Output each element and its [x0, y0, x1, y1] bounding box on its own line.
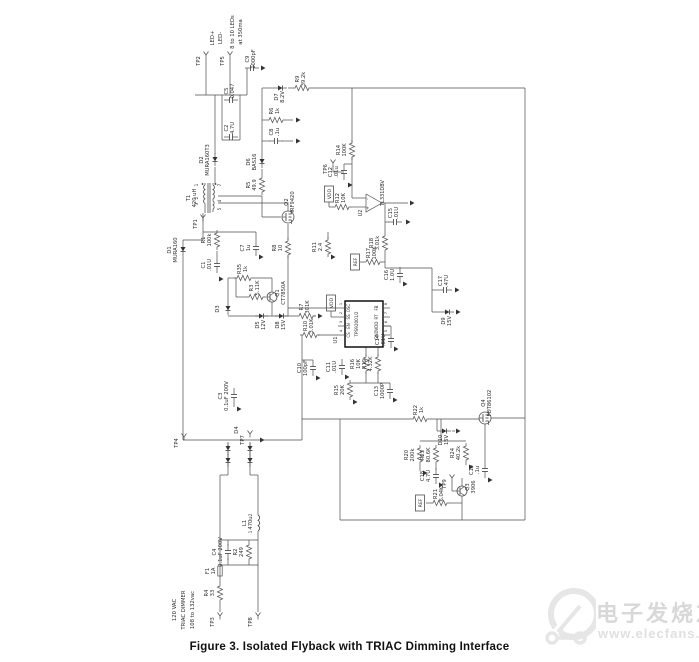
component-R22: R221k [410, 405, 430, 422]
component-TP4: TP4 [174, 434, 187, 449]
component-TP2: TP2 [196, 52, 209, 67]
component-R2: R2249 [233, 542, 252, 562]
svg-text:TP4: TP4 [174, 438, 180, 449]
component-7: 7 [217, 183, 222, 186]
svg-text:1: 1 [338, 302, 343, 305]
component-D6: D6BAS16 [246, 153, 265, 170]
svg-text:4.7U: 4.7U [426, 470, 432, 482]
svg-text:.01U: .01U [332, 361, 338, 373]
component-TP7: TP7 [240, 431, 253, 446]
svg-text:12V: 12V [261, 319, 267, 330]
svg-text:120 VAC: 120 VAC [172, 599, 178, 622]
component-VDD: VDD [327, 295, 336, 311]
svg-text:100pF: 100pF [303, 360, 309, 376]
component-diode [248, 454, 253, 467]
svg-text:1k: 1k [419, 407, 425, 413]
component-C13: C131000P [374, 383, 393, 399]
component-120 VAC: 120 VAC [172, 599, 178, 622]
svg-text:TPS92001/2: TPS92001/2 [354, 311, 359, 337]
component-4: 4 [217, 199, 222, 202]
component-C12: C12.01u [328, 164, 347, 180]
component-R12: R1210K [332, 192, 352, 209]
watermark: 电子发烧友 www.elecfans.com [540, 580, 699, 660]
svg-text:VDD: VDD [329, 297, 335, 308]
svg-text:TP8: TP8 [248, 617, 254, 628]
svg-text:SS: SS [346, 314, 351, 320]
component-R19: R194.32K [362, 354, 381, 374]
svg-text:.47U: .47U [444, 275, 450, 287]
component-Q2: Q2IRF9420 [282, 191, 296, 224]
svg-text:15V: 15V [281, 319, 287, 330]
svg-text:40.2k: 40.2k [456, 446, 462, 461]
svg-text:at 350ma: at 350ma [238, 19, 244, 45]
svg-text:D4: D4 [234, 426, 240, 434]
svg-text:TL331DBV: TL331DBV [380, 179, 386, 207]
svg-text:VDD: VDD [374, 322, 379, 331]
component-R10: R103.01K [300, 318, 320, 338]
component-LED-: LED- [218, 32, 224, 44]
component-TP5: TP5 [220, 52, 233, 67]
watermark-url: www.elecfans.com [598, 626, 699, 641]
component-C9: C91000pF [245, 49, 259, 71]
svg-text:EN: EN [346, 323, 351, 329]
svg-text:D3: D3 [215, 305, 221, 312]
svg-text:LED-: LED- [218, 32, 224, 44]
svg-text:2: 2 [194, 196, 199, 199]
svg-text:1u: 1u [246, 245, 252, 252]
svg-text:0.1uF 200V: 0.1uF 200V [218, 537, 224, 567]
svg-text:U2: U2 [358, 210, 364, 217]
svg-text:.01U: .01U [207, 259, 213, 271]
svg-text:4: 4 [338, 329, 343, 332]
component-C2: C24.7U [224, 122, 238, 140]
component-1: 1 [248, 530, 253, 533]
component-at 350ma: at 350ma [238, 19, 244, 45]
svg-text:U1: U1 [333, 336, 339, 343]
component-R15: R1520K [334, 380, 353, 400]
component-D3: D3 [215, 302, 231, 315]
svg-text:-: - [366, 198, 371, 200]
svg-text:10K: 10K [341, 192, 347, 203]
component-TP8: TP8 [248, 613, 261, 628]
svg-text:100k: 100k [207, 234, 213, 247]
component-R35: R351k [234, 264, 254, 281]
svg-text:100K: 100K [372, 246, 378, 260]
svg-text:.01u: .01u [334, 166, 340, 178]
svg-text:CS: CS [346, 332, 351, 338]
svg-text:39.2k: 39.2k [301, 72, 307, 87]
component-D4: D4 [234, 426, 240, 434]
svg-text:1k: 1k [243, 266, 249, 272]
component-108 to 132vac: 108 to 132vac [190, 591, 196, 629]
svg-text:1A: 1A [211, 567, 217, 574]
component-VDD: VDD [325, 186, 334, 202]
svg-text:TP1: TP1 [193, 219, 199, 230]
svg-text:.01U: .01U [381, 334, 387, 346]
svg-text:IRF9420: IRF9420 [290, 191, 296, 212]
component-D10: D1015V [438, 429, 451, 446]
svg-text:2.4: 2.4 [318, 242, 324, 251]
svg-text:8.2V: 8.2V [280, 91, 286, 103]
svg-text:.1u: .1u [475, 466, 481, 474]
component-C18: C184.7U [420, 468, 439, 484]
scanned-page: LED+LED-8 to 10 LEDsat 350maTP2TP5C91000… [0, 0, 699, 662]
svg-text:FB: FB [374, 305, 379, 310]
component-Q4: Q4FDT86102 [479, 390, 493, 425]
svg-text:.01U: .01U [394, 207, 400, 219]
svg-text:301K: 301K [305, 300, 311, 314]
component-diode [226, 454, 231, 467]
component-TP1: TP1 [193, 215, 206, 230]
component-D7: D78.2V [274, 86, 287, 103]
svg-text:2: 2 [338, 311, 343, 314]
component-2: 2 [194, 196, 199, 199]
svg-text:15V: 15V [447, 315, 453, 326]
svg-text:TP3: TP3 [210, 617, 216, 628]
svg-text:108 to 132vac: 108 to 132vac [190, 591, 196, 629]
svg-text:BAS16: BAS16 [252, 153, 258, 170]
component-D5: D512V [255, 314, 268, 331]
svg-text:3: 3 [338, 320, 343, 323]
svg-text:4.32K: 4.32K [368, 356, 374, 372]
svg-text:REF: REF [353, 257, 359, 266]
component-C8: C8.1u [269, 128, 283, 144]
svg-text:OSC: OSC [346, 304, 351, 313]
component-L1: L1470u [242, 515, 260, 531]
component-5: 5 [217, 207, 222, 210]
component-C1: C1.01U [201, 257, 220, 273]
component-TRIAC DIMMER: TRIAC DIMMER [181, 590, 187, 631]
component-C15: C15.01U [388, 207, 402, 225]
svg-text:.1u: .1u [275, 128, 281, 136]
ground-arrows [219, 66, 493, 488]
svg-text:VDD: VDD [327, 188, 333, 199]
svg-text:6.04K: 6.04K [439, 486, 445, 502]
svg-text:TP5: TP5 [220, 56, 226, 67]
component-D8: D815V [275, 314, 288, 331]
component-C19: C19.1u [469, 462, 488, 478]
component-R8: R810 [272, 238, 291, 258]
component-TP3: TP3 [210, 613, 223, 628]
component-T1: T1420 uH [186, 183, 216, 213]
component-Q1: Q1CT7850A [267, 281, 287, 305]
svg-text:1000pF: 1000pF [251, 49, 257, 68]
component-R5: R549.9 [246, 175, 265, 195]
svg-text:3906: 3906 [471, 480, 477, 493]
svg-text:1000P: 1000P [380, 383, 386, 399]
svg-text:2: 2 [248, 513, 253, 516]
svg-text:8 to 10 LEDs: 8 to 10 LEDs [230, 15, 236, 49]
component-C16: C161.0U [384, 267, 403, 283]
component-1: 1 [194, 183, 199, 186]
svg-text:TP7: TP7 [240, 435, 246, 446]
svg-text:80.6K: 80.6K [426, 447, 432, 463]
elecfans-logo-icon [540, 580, 596, 660]
svg-text:4: 4 [217, 199, 222, 202]
component-diode [226, 442, 231, 455]
component-REF: REF [351, 254, 360, 270]
component-3: 3 [194, 202, 199, 205]
svg-text:33: 33 [210, 590, 216, 597]
component-C17: C17.47U [438, 275, 452, 293]
svg-text:LED+: LED+ [210, 31, 216, 46]
svg-text:4.7U: 4.7U [230, 122, 236, 134]
component-R23: R2380.6K [420, 445, 439, 465]
component-REF: REF [416, 495, 425, 511]
svg-text:MURA160: MURA160 [173, 237, 179, 262]
svg-text:5.11K: 5.11K [255, 280, 261, 296]
svg-text:1k: 1k [275, 108, 281, 114]
svg-text:1.0U: 1.0U [390, 269, 396, 281]
component-R4: R433 [204, 583, 223, 603]
svg-text:0.047: 0.047 [230, 84, 236, 99]
svg-text:10: 10 [278, 245, 284, 252]
component-D9: D915V [441, 310, 454, 327]
component-R6: R61k [266, 108, 286, 123]
svg-text:FDT86102: FDT86102 [487, 390, 493, 417]
svg-text:1: 1 [194, 183, 199, 186]
svg-text:200k: 200k [410, 449, 416, 462]
svg-text:RT: RT [374, 314, 379, 319]
component-R11: R112.4 [312, 237, 331, 257]
component-R3: R35.11K [246, 280, 266, 300]
svg-text:0.1uF 200V: 0.1uF 200V [224, 381, 230, 411]
svg-text:470u: 470u [248, 516, 254, 529]
svg-text:3.01K: 3.01K [309, 318, 315, 334]
component-Q3: Q33906 [457, 480, 477, 496]
component-8 to 10 LEDs: 8 to 10 LEDs [230, 15, 236, 49]
svg-text:TRIAC DIMMER: TRIAC DIMMER [181, 590, 187, 631]
component-2: 2 [248, 513, 253, 516]
svg-text:MURA160T3: MURA160T3 [205, 144, 211, 176]
watermark-brand: 电子发烧友 [596, 596, 699, 628]
svg-text:1: 1 [248, 530, 253, 533]
svg-text:TP2: TP2 [196, 56, 202, 67]
svg-text:REF: REF [418, 498, 424, 507]
component-R7: R7301K [296, 300, 316, 319]
svg-text:20K: 20K [340, 384, 346, 395]
component-C5: C50.047 [224, 84, 238, 103]
svg-text:100K: 100K [342, 143, 348, 157]
component-LED+: LED+ [210, 31, 216, 46]
svg-text:7: 7 [217, 183, 222, 186]
component-C10: C10100pF [297, 360, 316, 376]
component-R24: R2440.2k [450, 443, 469, 463]
svg-text:+: + [365, 206, 371, 210]
component-C7: C71u [240, 240, 259, 256]
svg-text:249: 249 [239, 547, 245, 557]
component-R9: R939.2k [292, 72, 312, 91]
component-R14: R14100K [336, 140, 355, 160]
svg-text:3: 3 [194, 202, 199, 205]
svg-text:15V: 15V [444, 434, 450, 445]
svg-text:49.9: 49.9 [252, 179, 258, 191]
svg-text:5: 5 [217, 207, 222, 210]
component-R1: R1100k [201, 230, 220, 250]
svg-text:CT7850A: CT7850A [281, 281, 287, 305]
component-C11: C11.01U [326, 359, 345, 375]
schematic-canvas: LED+LED-8 to 10 LEDsat 350maTP2TP5C91000… [0, 0, 699, 662]
component-diode [248, 442, 253, 455]
